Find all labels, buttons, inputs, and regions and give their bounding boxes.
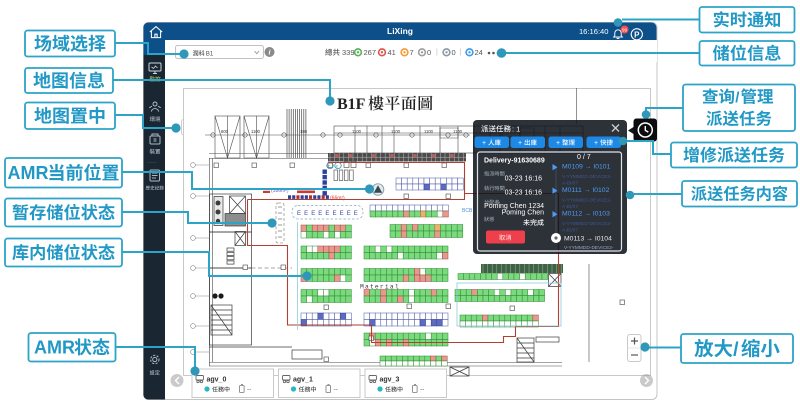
svg-text:0: 0	[427, 48, 431, 57]
svg-text:E: E	[325, 211, 329, 217]
svg-text:E: E	[340, 211, 344, 217]
svg-text:+: +	[594, 140, 598, 147]
svg-text:1100: 1100	[391, 129, 401, 134]
svg-text:0 / 7: 0 / 7	[577, 154, 591, 161]
svg-text:E: E	[304, 211, 308, 217]
svg-text:Delivery-91630689: Delivery-91630689	[484, 158, 545, 165]
svg-text:M0111 → I0102: M0111 → I0102	[562, 187, 610, 194]
svg-text:267: 267	[364, 48, 377, 57]
svg-text:16:16:40: 16:16:40	[579, 27, 609, 36]
svg-text:E: E	[333, 211, 337, 217]
svg-text:E: E	[354, 211, 358, 217]
svg-text:A-BI/07: A-BI/07	[562, 228, 578, 234]
svg-text:0: 0	[452, 48, 456, 57]
svg-text:V-YYMMDD-DEVICE2-: V-YYMMDD-DEVICE2-	[562, 174, 612, 180]
svg-text:1100: 1100	[424, 129, 434, 134]
svg-text:41: 41	[388, 48, 396, 57]
svg-text:1100: 1100	[453, 129, 463, 134]
svg-text:+: +	[556, 140, 560, 147]
svg-text:1100: 1100	[251, 129, 261, 134]
svg-text:--: --	[420, 386, 424, 393]
svg-text:/: /	[733, 339, 739, 361]
svg-text:03-23 16:16: 03-23 16:16	[505, 190, 542, 197]
svg-text:E: E	[347, 211, 351, 217]
svg-text:1100: 1100	[352, 129, 362, 134]
svg-text:--: --	[334, 386, 338, 393]
svg-text:: 1: : 1	[512, 125, 520, 134]
svg-text:+: +	[518, 140, 522, 147]
svg-text:E: E	[311, 211, 315, 217]
svg-text:Material: Material	[360, 284, 400, 291]
svg-text:V-YYMMDD-DEVICE2-: V-YYMMDD-DEVICE2-	[562, 221, 612, 227]
svg-text:|: |	[436, 49, 438, 56]
svg-text:03-23 16:16: 03-23 16:16	[505, 176, 542, 183]
svg-text:Poming Chen: Poming Chen	[502, 210, 545, 217]
svg-text:339: 339	[342, 48, 355, 57]
svg-text:(66m²): (66m²)	[330, 196, 345, 202]
svg-text:LiXing: LiXing	[387, 26, 413, 36]
svg-text:7: 7	[410, 48, 414, 57]
svg-text:A-BI/07: A-BI/07	[562, 204, 578, 210]
svg-text:V-YYMMDD-DEVICE2-: V-YYMMDD-DEVICE2-	[562, 198, 612, 204]
svg-text:M0112 → I0103: M0112 → I0103	[562, 211, 610, 218]
svg-text:|: |	[460, 49, 462, 56]
svg-text:24: 24	[475, 48, 483, 57]
svg-text:--: --	[247, 386, 251, 393]
svg-text:+: +	[482, 140, 486, 147]
svg-text:V-YYMMDD-DEVICE2-: V-YYMMDD-DEVICE2-	[564, 245, 614, 251]
svg-text:agv_3: agv_3	[380, 377, 400, 384]
svg-text:AMR: AMR	[34, 338, 75, 358]
svg-text:BCB: BCB	[462, 208, 473, 214]
svg-text:800: 800	[221, 129, 229, 134]
svg-text:B1: B1	[206, 51, 214, 58]
svg-text:agv_0: agv_0	[207, 377, 227, 384]
svg-text:agv_1: agv_1	[293, 377, 313, 384]
svg-text:AMR: AMR	[8, 163, 49, 183]
svg-text:A-BI/07: A-BI/07	[562, 181, 578, 187]
svg-text:......: ......	[148, 159, 156, 165]
svg-text:E: E	[297, 211, 301, 217]
svg-text:180: 180	[300, 129, 308, 134]
svg-text:M0113 → I0104: M0113 → I0104	[564, 236, 612, 243]
svg-text:E: E	[318, 211, 322, 217]
svg-text:99: 99	[622, 27, 628, 32]
svg-text:M0109 → I0101: M0109 → I0101	[562, 164, 611, 171]
svg-text:B1F: B1F	[337, 96, 366, 113]
svg-text:P: P	[634, 30, 640, 39]
